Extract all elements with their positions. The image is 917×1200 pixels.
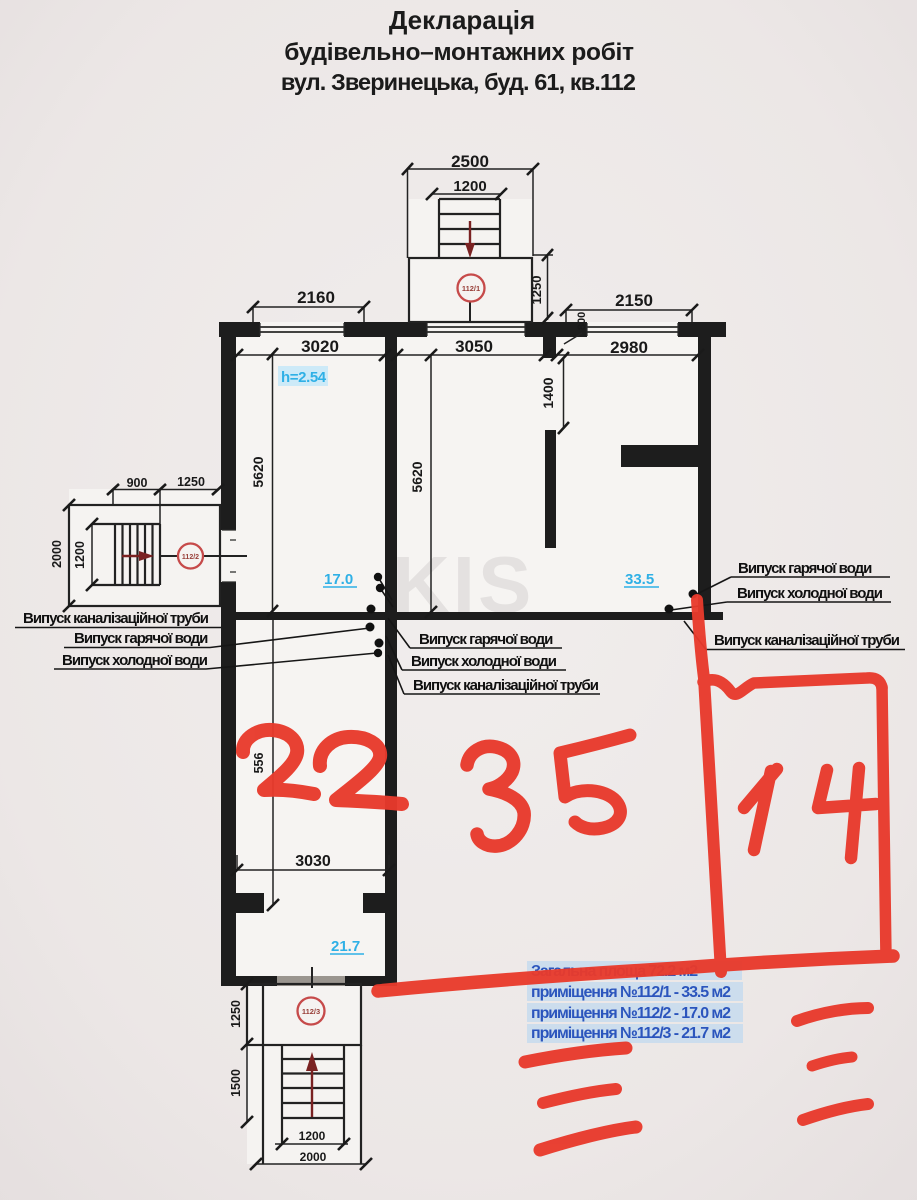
svg-text:17.0: 17.0 bbox=[324, 571, 353, 588]
svg-text:1500: 1500 bbox=[229, 1069, 243, 1097]
svg-text:1250: 1250 bbox=[529, 276, 544, 305]
svg-text:Випуск каналізаційної труби: Випуск каналізаційної труби bbox=[23, 610, 209, 627]
svg-text:Випуск каналізаційної труби: Випуск каналізаційної труби bbox=[413, 677, 599, 694]
svg-text:Випуск холодної води: Випуск холодної води bbox=[737, 585, 883, 602]
svg-text:1250: 1250 bbox=[229, 1000, 243, 1028]
svg-text:приміщення №112/3 - 21.7 м2: приміщення №112/3 - 21.7 м2 bbox=[531, 1025, 731, 1042]
svg-text:2500: 2500 bbox=[451, 152, 489, 171]
svg-text:900: 900 bbox=[127, 476, 148, 490]
svg-text:3020: 3020 bbox=[301, 337, 339, 356]
svg-text:1400: 1400 bbox=[540, 377, 556, 408]
svg-text:112/2: 112/2 bbox=[182, 554, 199, 561]
svg-text:вул. Зверинецька, буд. 61, кв.: вул. Зверинецька, буд. 61, кв.112 bbox=[281, 69, 636, 95]
svg-text:1200: 1200 bbox=[299, 1129, 326, 1143]
svg-text:3050: 3050 bbox=[455, 337, 493, 356]
svg-text:21.7: 21.7 bbox=[331, 938, 360, 955]
svg-text:112/3: 112/3 bbox=[302, 1007, 320, 1016]
svg-text:h=2.54: h=2.54 bbox=[281, 369, 327, 386]
svg-text:Випуск холодної води: Випуск холодної води bbox=[62, 652, 208, 669]
svg-text:будівельно–монтажних робіт: будівельно–монтажних робіт bbox=[284, 39, 634, 66]
svg-text:2000: 2000 bbox=[300, 1150, 327, 1164]
svg-text:2160: 2160 bbox=[297, 288, 335, 307]
svg-text:33.5: 33.5 bbox=[625, 571, 654, 588]
svg-text:1200: 1200 bbox=[73, 541, 87, 569]
svg-text:112/1: 112/1 bbox=[462, 284, 480, 293]
svg-text:приміщення №112/2 - 17.0 м2: приміщення №112/2 - 17.0 м2 bbox=[531, 1005, 731, 1022]
svg-text:Випуск холодної води: Випуск холодної води bbox=[411, 653, 557, 670]
svg-text:2150: 2150 bbox=[615, 291, 653, 310]
svg-text:3030: 3030 bbox=[295, 853, 331, 870]
svg-text:800: 800 bbox=[576, 312, 588, 330]
svg-text:556: 556 bbox=[252, 753, 266, 774]
svg-text:Випуск гарячої води: Випуск гарячої води bbox=[419, 631, 553, 648]
svg-text:1250: 1250 bbox=[177, 475, 205, 489]
svg-text:Декларація: Декларація bbox=[389, 5, 535, 35]
svg-text:Випуск каналізаційної труби: Випуск каналізаційної труби bbox=[714, 632, 900, 649]
svg-text:Випуск гарячої води: Випуск гарячої води bbox=[74, 630, 208, 647]
svg-text:1200: 1200 bbox=[453, 178, 486, 195]
svg-text:5620: 5620 bbox=[409, 461, 425, 492]
svg-text:приміщення №112/1 - 33.5 м2: приміщення №112/1 - 33.5 м2 bbox=[531, 984, 731, 1001]
svg-text:2980: 2980 bbox=[610, 338, 648, 357]
svg-text:5620: 5620 bbox=[250, 456, 266, 487]
svg-text:2000: 2000 bbox=[50, 540, 64, 568]
svg-text:Випуск гарячої води: Випуск гарячої води bbox=[738, 560, 872, 577]
